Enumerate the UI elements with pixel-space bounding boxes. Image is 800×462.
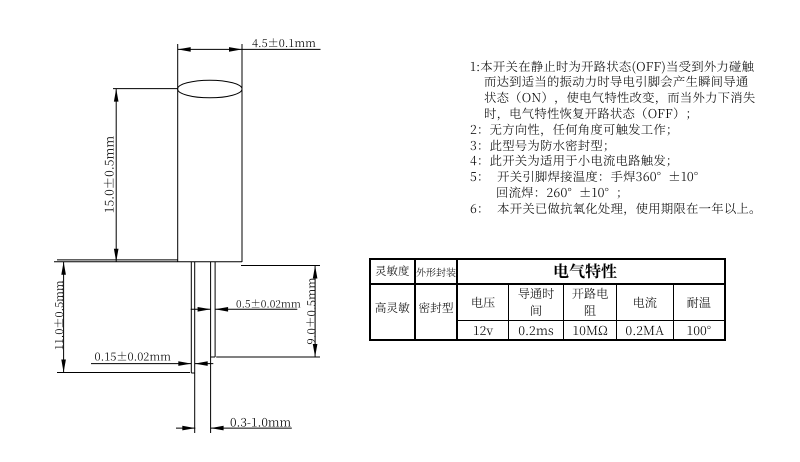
svg-text:0.15±0.02mm: 0.15±0.02mm <box>95 349 172 365</box>
svg-text:0.3-1.0mm: 0.3-1.0mm <box>230 413 292 430</box>
svg-text:11.0±0.5mm: 11.0±0.5mm <box>51 280 67 350</box>
svg-text:9.0±0.5mm: 9.0±0.5mm <box>303 277 319 344</box>
svg-text:4.5±0.1mm: 4.5±0.1mm <box>252 35 316 51</box>
svg-text:0.5±0.02mm: 0.5±0.02mm <box>236 296 301 311</box>
svg-text:15.0±0.5mm: 15.0±0.5mm <box>100 136 118 214</box>
